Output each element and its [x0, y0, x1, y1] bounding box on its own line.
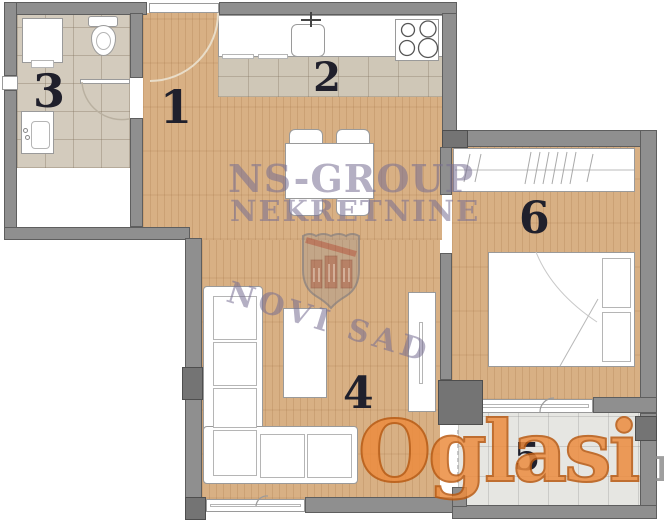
- agency-watermark-line2: NEKRETNINE: [230, 197, 480, 226]
- sofa-cushion: [213, 342, 257, 386]
- wall-bath-bottom: [4, 227, 190, 240]
- wall-terrace-bottom: [452, 505, 657, 519]
- wall-kitchen-right: [442, 13, 457, 133]
- wall-top-left: [4, 2, 147, 15]
- bathroom-window: [2, 76, 18, 90]
- stove: [395, 19, 439, 61]
- bathroom-floor-lower: [17, 168, 130, 227]
- site-watermark: Oglasi.rs: [358, 410, 664, 494]
- entrance-door-leaf: [149, 3, 219, 13]
- bed-pillow: [602, 258, 631, 308]
- sofa-cushion: [213, 430, 257, 476]
- room-6-label: 6: [519, 197, 549, 241]
- wall-corner-pillar: [442, 130, 468, 148]
- washer-knob: [25, 135, 30, 140]
- wall-bath-left-lower: [4, 90, 17, 240]
- wall-bedroom-right: [640, 130, 657, 413]
- wall-bath-right-upper: [130, 13, 143, 78]
- washing-machine-door: [31, 121, 50, 149]
- wardrobe: [453, 148, 635, 192]
- sofa-cushion: [260, 434, 305, 478]
- toilet-seat: [96, 32, 111, 50]
- room-1-label: 1: [160, 84, 190, 130]
- novi-sad-shield-logo: [298, 230, 364, 310]
- wall-bedroom-top: [442, 130, 657, 147]
- wall-bath-right-lower: [130, 118, 143, 227]
- kitchen-sink: [291, 24, 325, 57]
- wall-living-left-pier: [182, 367, 203, 400]
- sofa-cushion: [307, 434, 352, 478]
- bathroom-door-leaf: [80, 79, 130, 84]
- floor-plan: 1 2 3 4 5 6 NS-GROUP NEKRETNINE NOVI SAD…: [0, 0, 664, 522]
- wall-top-kitchen: [219, 2, 457, 15]
- counter-drawer: [222, 54, 254, 59]
- agency-watermark-line1: NS-GROUP: [228, 160, 474, 198]
- room-3-label: 3: [33, 68, 63, 114]
- washbasin: [22, 18, 63, 63]
- wall-living-bedroom: [440, 253, 452, 380]
- living-window-glass: [210, 504, 301, 507]
- bed-pillow: [602, 312, 631, 362]
- wall-living-bottom-pillar: [185, 497, 206, 520]
- wall-bath-left-upper: [4, 2, 17, 76]
- counter-drawer: [258, 54, 288, 59]
- sofa-cushion: [213, 388, 257, 428]
- washer-knob: [23, 128, 28, 133]
- site-watermark-tld: .rs: [637, 437, 664, 493]
- site-watermark-name: Oglasi: [358, 402, 637, 501]
- room-2-label: 2: [312, 58, 342, 98]
